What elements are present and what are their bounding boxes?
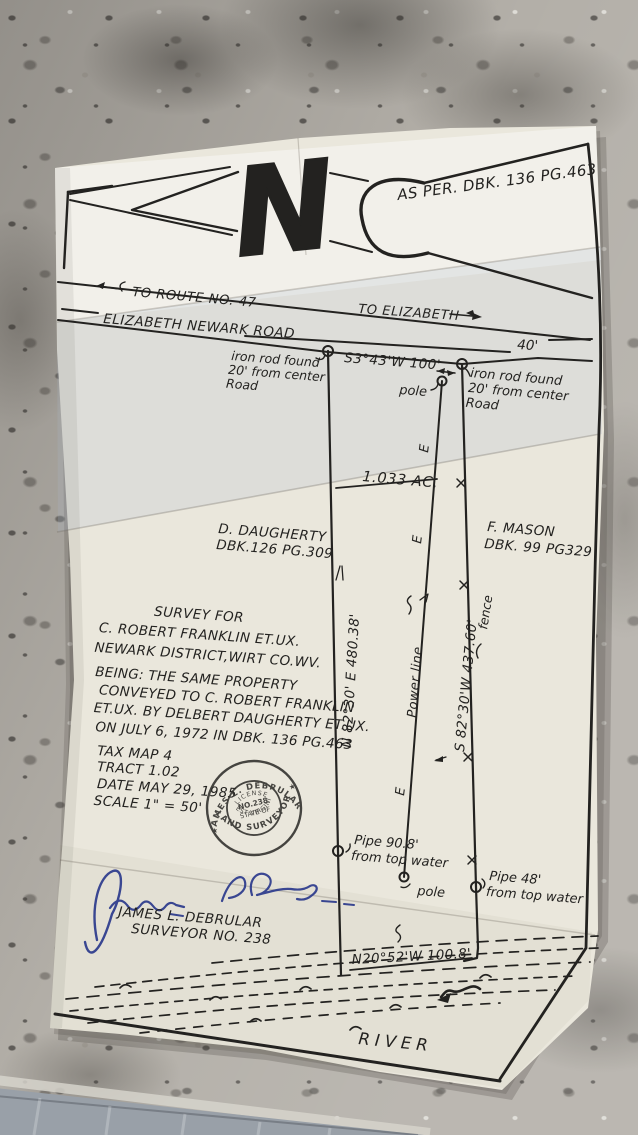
floor	[0, 1080, 430, 1135]
svg-text:Road: Road	[226, 376, 259, 393]
svg-text:Road: Road	[465, 396, 500, 414]
survey-photo-scene: N AS PER. DBK. 136 PG.463 TO ROUTE NO. 4…	[0, 0, 638, 1135]
pole-bottom-label: pole	[416, 884, 446, 901]
road-width-label: 40'	[517, 337, 539, 354]
north-letter: N	[226, 134, 341, 285]
pole-top-label: pole	[398, 383, 428, 400]
